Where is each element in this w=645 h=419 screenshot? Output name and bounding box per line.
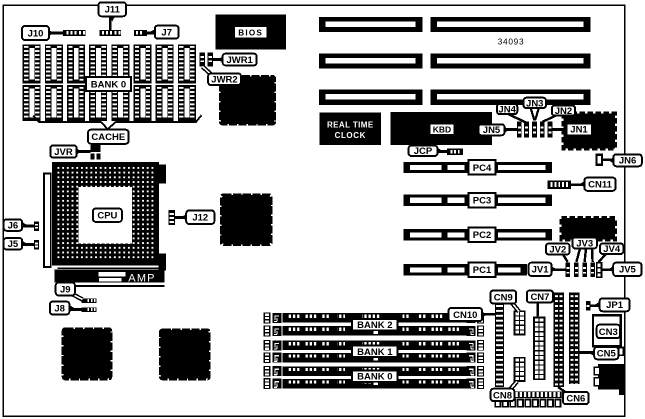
svg-text:JN6: JN6: [619, 156, 636, 167]
svg-text:CN7: CN7: [530, 292, 549, 303]
svg-text:JV3: JV3: [576, 238, 593, 249]
svg-text:JWR1: JWR1: [226, 55, 253, 66]
svg-text:JN2: JN2: [555, 106, 572, 117]
svg-text:CN9: CN9: [494, 292, 513, 303]
svg-text:JVR: JVR: [54, 147, 73, 158]
svg-text:PC2: PC2: [473, 230, 491, 241]
svg-text:J10: J10: [28, 28, 44, 39]
svg-text:BANK 2: BANK 2: [357, 320, 392, 331]
svg-text:JV1: JV1: [532, 265, 550, 276]
svg-text:J8: J8: [54, 303, 65, 314]
svg-text:J6: J6: [8, 220, 19, 231]
svg-text:CN10: CN10: [453, 310, 477, 321]
svg-text:JN4: JN4: [498, 104, 516, 115]
svg-text:J9: J9: [60, 284, 71, 295]
svg-text:CN5: CN5: [597, 349, 617, 360]
svg-text:JV4: JV4: [603, 244, 621, 255]
svg-text:AMP: AMP: [128, 272, 155, 284]
svg-text:JN5: JN5: [483, 125, 501, 136]
svg-text:J5: J5: [8, 239, 19, 250]
svg-text:J7: J7: [161, 28, 172, 39]
svg-text:CN8: CN8: [493, 390, 512, 401]
svg-text:34093: 34093: [498, 36, 525, 46]
svg-text:J11: J11: [105, 5, 121, 16]
svg-text:CN6: CN6: [566, 393, 585, 404]
svg-text:BANK 0: BANK 0: [357, 372, 392, 383]
svg-text:PC1: PC1: [473, 265, 492, 276]
svg-text:JN1: JN1: [570, 125, 588, 136]
svg-text:CLOCK: CLOCK: [335, 131, 366, 140]
svg-text:CN3: CN3: [599, 327, 618, 338]
svg-text:REAL TIME: REAL TIME: [327, 120, 374, 129]
svg-text:CACHE: CACHE: [91, 132, 125, 143]
svg-text:JWR2: JWR2: [211, 75, 237, 86]
svg-text:CPU: CPU: [97, 211, 117, 222]
svg-text:JV2: JV2: [549, 244, 566, 255]
svg-text:JN3: JN3: [526, 98, 543, 109]
svg-text:JCP: JCP: [414, 146, 433, 157]
svg-text:BIOS: BIOS: [238, 28, 263, 37]
svg-text:BANK 0: BANK 0: [91, 80, 126, 91]
svg-text:JV5: JV5: [619, 265, 637, 276]
svg-text:PC4: PC4: [473, 163, 492, 174]
svg-text:J12: J12: [192, 213, 208, 224]
svg-text:CN11: CN11: [588, 180, 612, 191]
svg-text:BANK 1: BANK 1: [357, 347, 393, 358]
svg-text:PC3: PC3: [473, 196, 491, 207]
svg-text:KBD: KBD: [433, 125, 451, 135]
svg-text:JP1: JP1: [606, 300, 624, 311]
